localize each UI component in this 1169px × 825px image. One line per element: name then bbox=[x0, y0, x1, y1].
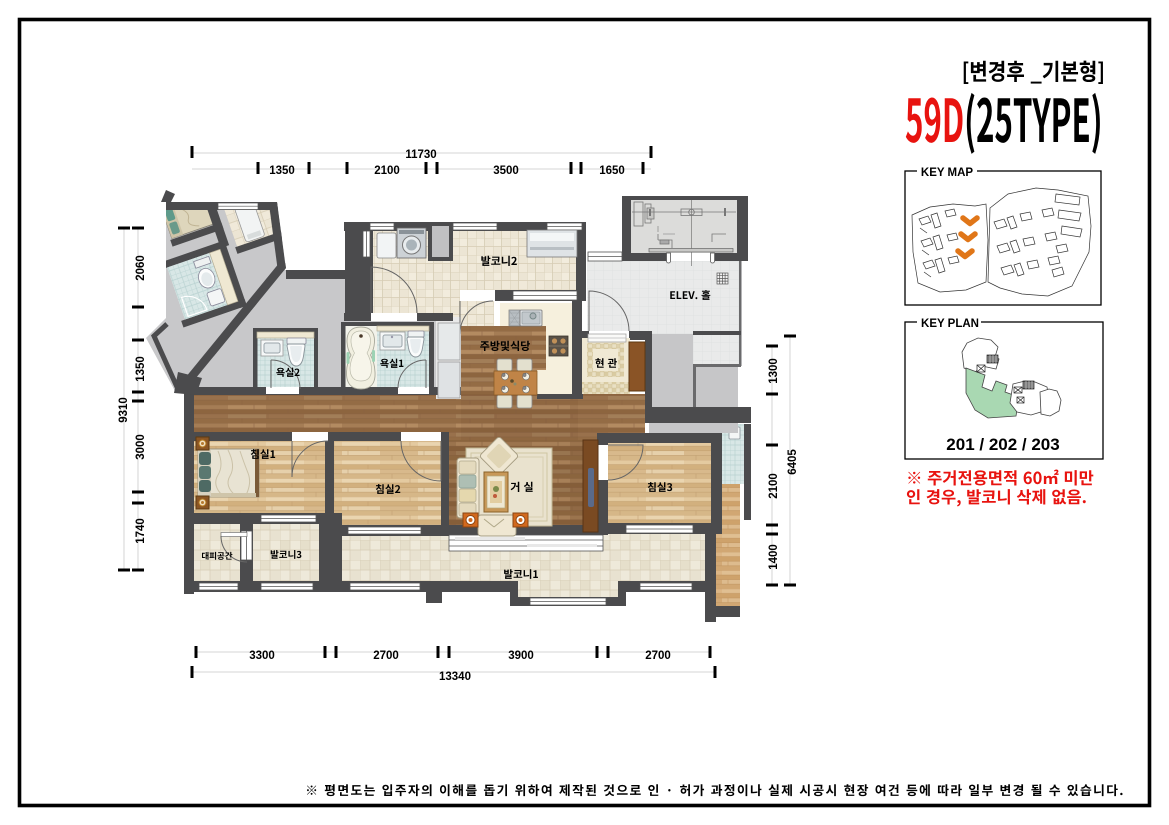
svg-text:3500: 3500 bbox=[493, 165, 519, 177]
svg-text:2700: 2700 bbox=[645, 650, 671, 662]
svg-text:3000: 3000 bbox=[135, 434, 147, 460]
svg-text:2060: 2060 bbox=[135, 255, 147, 281]
svg-text:3900: 3900 bbox=[508, 650, 534, 662]
svg-text:1400: 1400 bbox=[768, 544, 780, 570]
svg-text:3300: 3300 bbox=[249, 650, 275, 662]
svg-text:201 / 202 / 203: 201 / 202 / 203 bbox=[946, 435, 1059, 454]
svg-text:1650: 1650 bbox=[599, 165, 625, 177]
svg-text:KEY MAP: KEY MAP bbox=[921, 167, 974, 179]
svg-text:1350: 1350 bbox=[135, 356, 147, 382]
svg-text:2700: 2700 bbox=[373, 650, 399, 662]
svg-text:2100: 2100 bbox=[768, 473, 780, 499]
svg-text:1300: 1300 bbox=[768, 358, 780, 384]
svg-text:2100: 2100 bbox=[374, 165, 400, 177]
svg-text:KEY PLAN: KEY PLAN bbox=[921, 318, 979, 330]
svg-text:6405: 6405 bbox=[787, 449, 799, 475]
svg-text:11730: 11730 bbox=[405, 149, 436, 161]
svg-text:13340: 13340 bbox=[439, 671, 471, 683]
svg-text:9310: 9310 bbox=[118, 397, 130, 423]
svg-text:1740: 1740 bbox=[135, 518, 147, 544]
svg-text:1350: 1350 bbox=[269, 165, 295, 177]
